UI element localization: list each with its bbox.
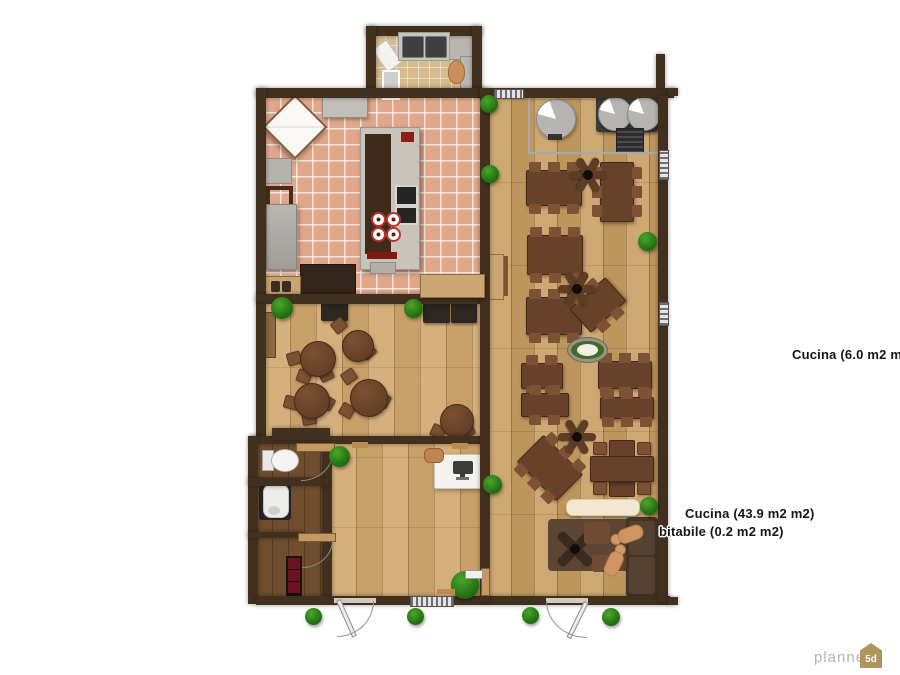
plant[interactable] [640,497,658,515]
planner5d-badge-icon: 5d [860,643,882,668]
table-top [590,456,654,482]
sofa-cushion [629,557,655,594]
table-top [262,94,327,159]
table-hub [570,544,580,554]
stove-burner [371,212,386,227]
door-arc [546,601,587,638]
round-bar-table[interactable] [627,97,661,131]
toilet-figure[interactable] [448,60,465,84]
person-body [601,549,626,579]
fan-blade [558,433,596,441]
door-shelf [465,570,483,579]
chair[interactable] [637,482,651,495]
stove-burner [371,227,386,242]
plant[interactable] [602,608,620,626]
room-label: Cucina (6.0 m2 m2) [792,347,900,362]
plant[interactable] [481,165,499,183]
pass-through-bar[interactable] [420,274,485,298]
wine-cell [288,558,300,569]
floor-cushion[interactable] [584,522,610,544]
wall[interactable] [668,88,678,96]
cabinet-knob [271,281,280,292]
wall-hook [352,442,368,448]
plant[interactable] [404,299,423,318]
flower-planter[interactable] [567,337,608,363]
kitchen-cabinet[interactable] [264,158,292,184]
ceiling-fan[interactable] [568,155,608,195]
wall[interactable] [668,597,678,605]
toilet[interactable] [271,449,299,472]
wall[interactable] [272,428,330,440]
window[interactable] [494,89,524,99]
round-bar-table[interactable] [536,99,576,139]
fan-blade [569,171,607,179]
plant[interactable] [305,608,322,625]
dark-side-table[interactable] [300,264,356,296]
wall[interactable] [248,436,258,604]
chair[interactable] [593,482,607,495]
wall-bench[interactable] [265,312,276,358]
glass-partition[interactable] [528,98,530,154]
stove-burner [386,227,401,242]
plant[interactable] [407,608,424,625]
wall[interactable] [256,304,266,438]
wine-rack[interactable] [286,556,302,598]
dining-table[interactable] [598,361,652,389]
kitchen-counter[interactable] [322,96,368,118]
monitor-base [456,477,469,480]
double-sink[interactable] [398,32,450,61]
wall[interactable] [248,532,304,538]
stove-burner [386,212,401,227]
room-label: bitabile (0.2 m2 m2) [659,524,784,539]
plant[interactable] [483,475,502,494]
sink-basin [425,36,447,58]
round-table[interactable] [440,404,474,438]
round-table[interactable] [294,383,330,419]
plant[interactable] [329,446,350,467]
wall[interactable] [256,88,266,304]
sink-basin [402,36,424,58]
island-red-strip [367,252,397,259]
window[interactable] [659,302,669,326]
room-label: Cucina (43.9 m2 m2) [685,506,815,521]
prep-table-diamond[interactable] [268,100,322,154]
wine-cell [288,570,300,581]
round-table[interactable] [300,341,336,377]
wall[interactable] [256,88,484,98]
round-table[interactable] [342,330,374,362]
window[interactable] [410,596,454,607]
fan-blade [558,285,596,293]
wall[interactable] [472,26,482,96]
glass-partition[interactable] [530,152,660,154]
ceiling-fan[interactable] [557,269,597,309]
wine-cell [288,582,300,593]
door-arc [337,601,374,637]
bar-stool[interactable] [451,301,477,323]
floorplan-canvas: Cucina (6.0 m2 m2) Cucina (43.9 m2 m2) b… [0,0,900,675]
kitchen-island[interactable] [360,127,420,270]
bar-stool[interactable] [423,301,450,323]
ceiling-fan[interactable] [557,417,597,457]
wall-bench[interactable] [489,254,504,300]
fridge[interactable] [266,204,297,270]
island-step[interactable] [370,262,396,274]
person-body [616,523,646,546]
radiator[interactable] [616,128,644,154]
plant[interactable] [522,607,539,624]
plant[interactable] [271,297,293,319]
round-table[interactable] [350,379,388,417]
control-panel [401,132,414,142]
wall-hook [452,443,468,449]
dining-table[interactable] [600,397,654,419]
dining-table[interactable] [521,393,569,417]
stool[interactable] [424,448,444,463]
sink-basin [395,185,418,206]
wall-hook [437,589,455,594]
window[interactable] [659,150,669,180]
chair[interactable] [637,442,651,455]
bar-table-base [548,134,562,140]
bathtub-faucet [268,506,280,515]
wall[interactable] [248,478,328,486]
cross-dining-table[interactable] [590,440,652,495]
cabinet-knob [282,281,291,292]
plant[interactable] [638,232,657,251]
white-bench[interactable] [566,499,640,516]
monitor-icon [453,461,473,474]
wall[interactable] [656,54,665,88]
